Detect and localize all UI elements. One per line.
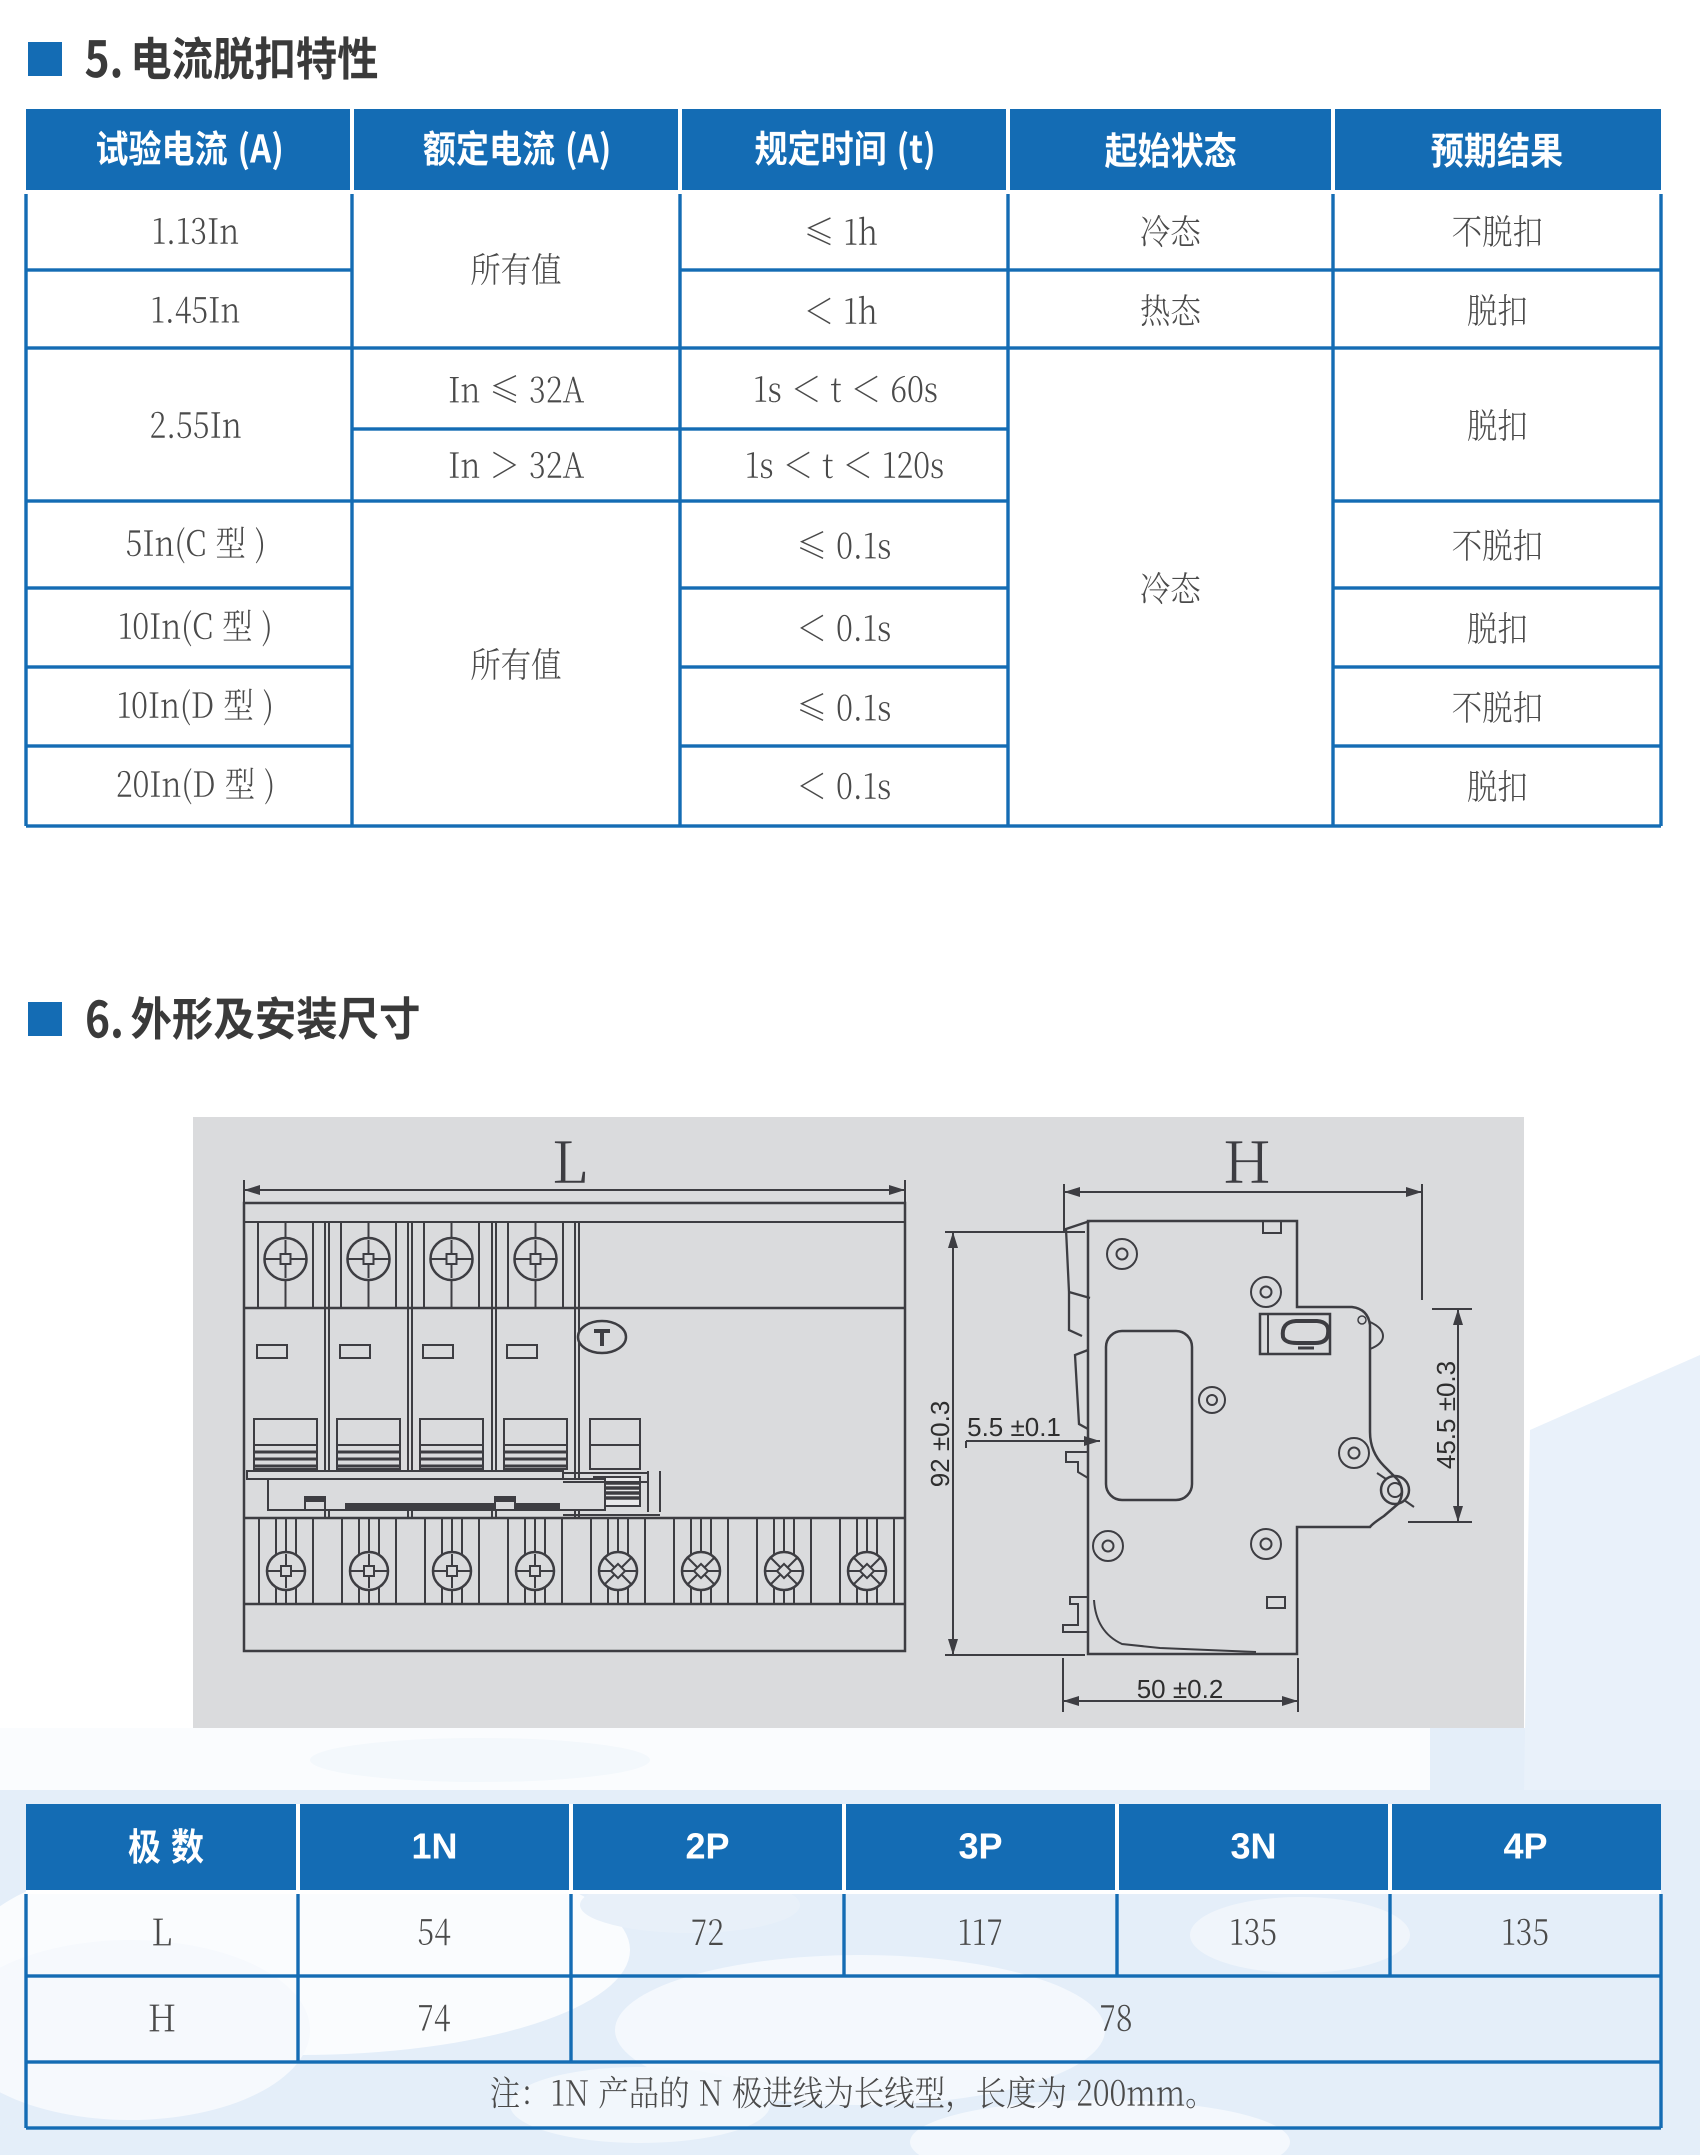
svg-text:3N: 3N <box>1230 1826 1276 1867</box>
svg-text:92 ±0.3: 92 ±0.3 <box>925 1401 955 1488</box>
svg-text:5.5 ±0.1: 5.5 ±0.1 <box>967 1412 1061 1442</box>
svg-text:4P: 4P <box>1503 1826 1547 1867</box>
svg-text:2P: 2P <box>685 1826 729 1867</box>
svg-text:50 ±0.2: 50 ±0.2 <box>1137 1674 1224 1704</box>
svg-text:1N: 1N <box>411 1826 457 1867</box>
svg-text:3P: 3P <box>958 1826 1002 1867</box>
svg-text:45.5 ±0.3: 45.5 ±0.3 <box>1431 1361 1461 1469</box>
